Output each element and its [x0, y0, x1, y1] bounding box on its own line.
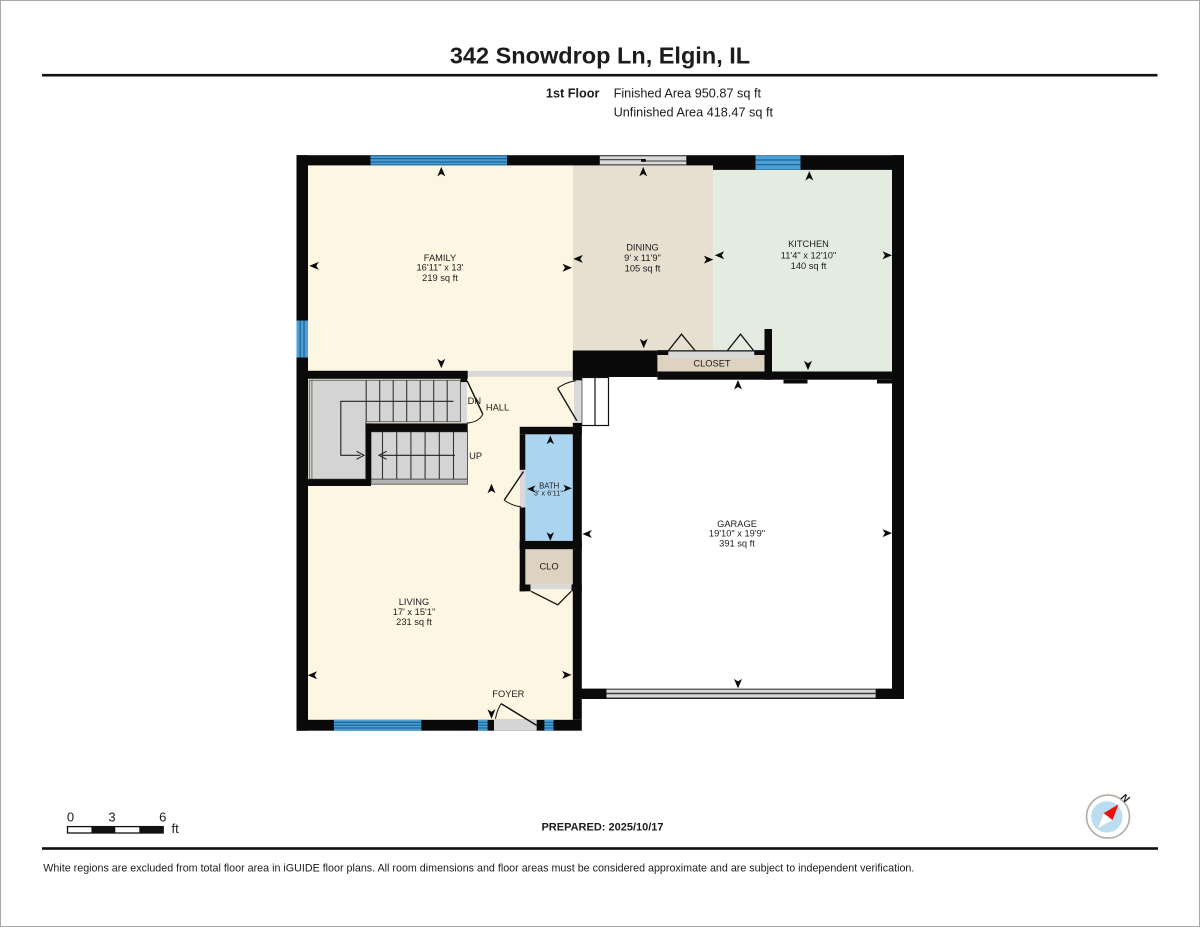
svg-text:CLO: CLO — [539, 562, 558, 572]
svg-text:9' x 11'9": 9' x 11'9" — [624, 253, 661, 263]
svg-text:UP: UP — [469, 451, 482, 461]
svg-text:LIVING: LIVING — [399, 597, 429, 607]
svg-text:231 sq ft: 231 sq ft — [396, 617, 432, 627]
svg-text:PREPARED: 2025/10/17: PREPARED: 2025/10/17 — [541, 822, 663, 834]
svg-text:140 sq ft: 140 sq ft — [791, 261, 827, 271]
svg-text:342 Snowdrop Ln, Elgin, IL: 342 Snowdrop Ln, Elgin, IL — [450, 42, 750, 68]
svg-text:219 sq ft: 219 sq ft — [422, 273, 458, 283]
svg-text:3: 3 — [108, 809, 115, 824]
svg-text:White regions are excluded fro: White regions are excluded from total fl… — [43, 863, 914, 875]
svg-text:3' x 6'11": 3' x 6'11" — [534, 488, 564, 497]
svg-text:DN: DN — [468, 396, 481, 406]
svg-text:ft: ft — [172, 821, 180, 836]
svg-text:391 sq ft: 391 sq ft — [719, 538, 755, 548]
svg-text:19'10" x 19'9": 19'10" x 19'9" — [709, 529, 765, 539]
svg-text:Finished Area 950.87 sq ft: Finished Area 950.87 sq ft — [614, 87, 762, 101]
svg-text:1st Floor: 1st Floor — [546, 87, 600, 101]
svg-text:16'11" x 13': 16'11" x 13' — [417, 262, 464, 272]
svg-text:CLOSET: CLOSET — [693, 359, 731, 369]
svg-text:105 sq ft: 105 sq ft — [625, 263, 661, 273]
svg-text:FAMILY: FAMILY — [424, 253, 456, 263]
svg-text:17' x 15'1": 17' x 15'1" — [393, 607, 436, 617]
svg-text:KITCHEN: KITCHEN — [788, 239, 829, 249]
svg-text:0: 0 — [67, 809, 74, 824]
svg-text:Unfinished Area 418.47 sq ft: Unfinished Area 418.47 sq ft — [614, 105, 774, 119]
svg-text:6: 6 — [159, 809, 166, 824]
svg-text:DINING: DINING — [626, 243, 659, 253]
svg-text:HALL: HALL — [486, 403, 509, 413]
svg-text:11'4" x 12'10": 11'4" x 12'10" — [781, 250, 836, 260]
svg-text:FOYER: FOYER — [492, 689, 524, 699]
svg-text:GARAGE: GARAGE — [717, 519, 757, 529]
